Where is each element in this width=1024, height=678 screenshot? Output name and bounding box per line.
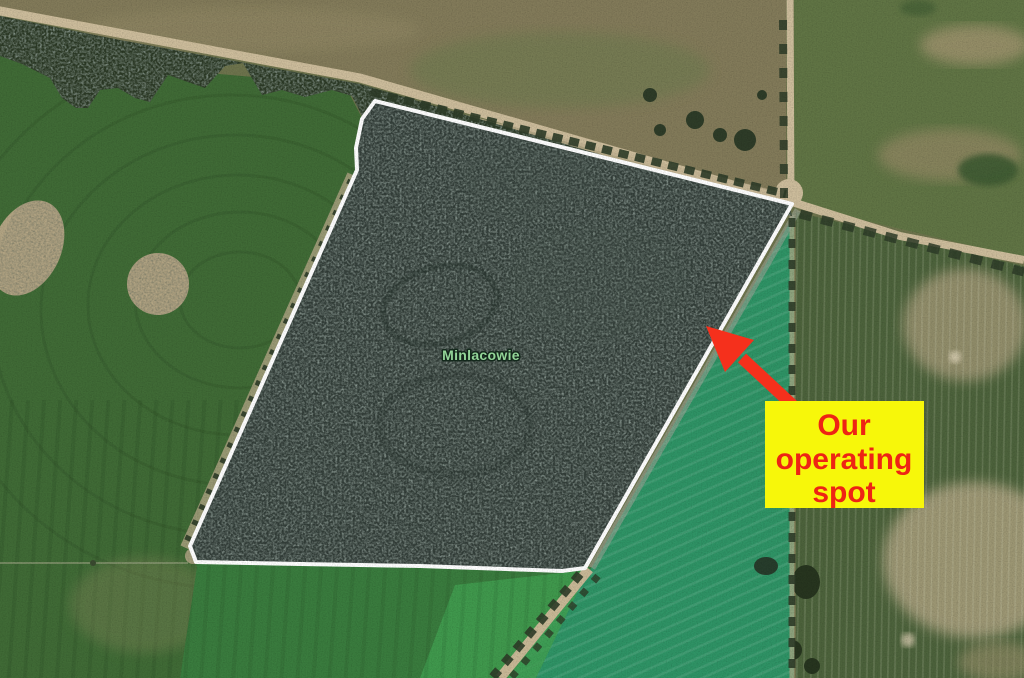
callout-line-1: Our [817,409,871,442]
satellite-map-image: Minlacowie Our operating spot [0,0,1024,678]
area-label: Minlacowie [442,347,520,363]
grain-overlay [0,0,1024,678]
satellite-map: Minlacowie Our operating spot [0,0,1024,678]
annotation-callout: Our operating spot [765,401,924,509]
callout-line-2: operating [776,443,913,476]
callout-line-3: spot [812,476,875,509]
